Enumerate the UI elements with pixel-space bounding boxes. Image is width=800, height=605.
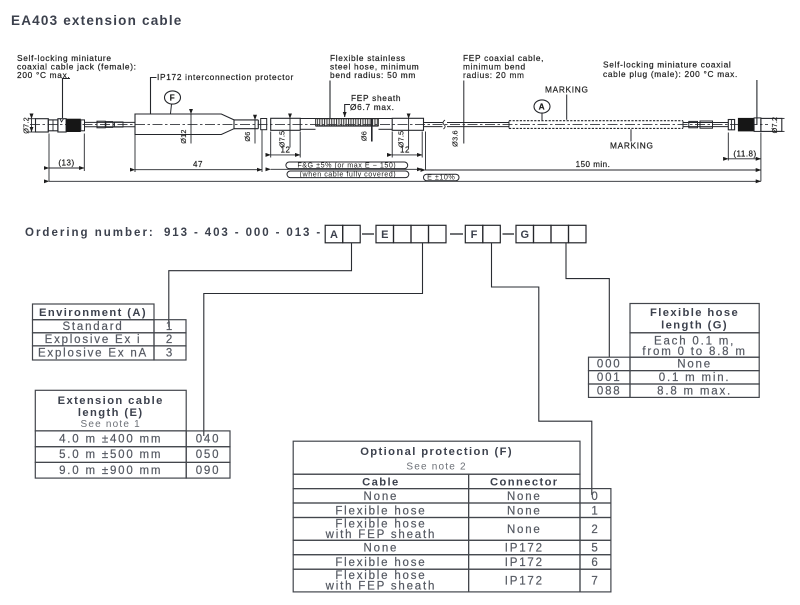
svg-text:Ø12: Ø12 [179, 129, 188, 143]
svg-text:1: 1 [591, 506, 599, 518]
svg-text:040: 040 [196, 434, 221, 446]
svg-text:A: A [539, 102, 546, 112]
svg-text:F: F [471, 229, 478, 241]
svg-text:Flexible hose: Flexible hose [335, 506, 426, 518]
svg-text:913 - 403 - 000 - 013 -: 913 - 403 - 000 - 013 - [164, 227, 322, 239]
svg-text:G: G [521, 229, 530, 241]
svg-text:12: 12 [400, 146, 410, 155]
svg-text:None: None [677, 359, 712, 371]
svg-text:8.8 m max.: 8.8 m max. [657, 386, 732, 398]
svg-text:3: 3 [166, 348, 174, 360]
svg-text:000: 000 [597, 359, 622, 371]
svg-text:A: A [330, 229, 338, 241]
svg-text:See note 1: See note 1 [81, 419, 141, 430]
svg-text:with FEP sheath: with FEP sheath [325, 581, 437, 593]
svg-text:Explosive Ex i: Explosive Ex i [45, 334, 142, 346]
svg-text:F&G ±5% (or max E − 150): F&G ±5% (or max E − 150) [297, 160, 396, 169]
svg-text:6: 6 [591, 557, 599, 569]
svg-text:Ordering number:: Ordering number: [25, 227, 155, 239]
svg-text:150 min.: 150 min. [576, 160, 611, 169]
svg-text:(11.8): (11.8) [733, 149, 756, 158]
svg-text:Explosive Ex nA: Explosive Ex nA [38, 348, 148, 360]
svg-text:088: 088 [597, 386, 622, 398]
svg-text:Ø7.2: Ø7.2 [21, 117, 30, 134]
svg-text:090: 090 [196, 465, 221, 477]
svg-text:bend radius: 50 mm: bend radius: 50 mm [330, 70, 416, 80]
svg-text:None: None [364, 491, 399, 503]
svg-text:Ø7.2: Ø7.2 [770, 117, 779, 134]
svg-text:0.1 m min.: 0.1 m min. [659, 372, 731, 384]
svg-text:MARKING: MARKING [610, 141, 654, 151]
svg-text:EA403 extension cable: EA403 extension cable [11, 13, 183, 28]
svg-text:5: 5 [591, 543, 599, 555]
svg-text:(13): (13) [58, 159, 74, 168]
svg-text:1: 1 [166, 321, 174, 333]
svg-text:Optional protection (F): Optional protection (F) [360, 446, 513, 458]
svg-text:2: 2 [166, 334, 174, 346]
svg-text:(when cable fully covered): (when cable fully covered) [300, 169, 397, 178]
svg-text:Self-locking miniature coaxial: Self-locking miniature coaxial [603, 60, 731, 70]
svg-text:4.0 m ±400 mm: 4.0 m ±400 mm [59, 434, 162, 446]
svg-text:12: 12 [281, 146, 291, 155]
svg-text:Flexible hose: Flexible hose [650, 307, 739, 319]
svg-text:IP172: IP172 [505, 543, 544, 555]
svg-text:radius: 20 mm: radius: 20 mm [463, 70, 525, 80]
svg-text:9.0 m ±900 mm: 9.0 m ±900 mm [59, 465, 162, 477]
svg-text:with FEP sheath: with FEP sheath [325, 529, 437, 541]
svg-text:F: F [170, 93, 176, 103]
svg-text:IP172 interconnection protecto: IP172 interconnection protector [157, 72, 294, 82]
svg-text:E: E [381, 229, 388, 241]
svg-text:Extension cable: Extension cable [58, 395, 164, 407]
svg-text:length (E): length (E) [78, 407, 144, 419]
svg-text:5.0 m ±500 mm: 5.0 m ±500 mm [59, 449, 162, 461]
svg-text:length (G): length (G) [661, 320, 728, 332]
svg-text:None: None [507, 506, 542, 518]
svg-text:Flexible hose: Flexible hose [335, 557, 426, 569]
svg-text:IP172: IP172 [505, 557, 544, 569]
svg-text:None: None [507, 491, 542, 503]
svg-text:E ±10%: E ±10% [427, 172, 455, 181]
svg-text:Ø6.7 max.: Ø6.7 max. [350, 102, 395, 112]
svg-text:Ø3.6: Ø3.6 [450, 130, 459, 147]
svg-text:See note 2: See note 2 [406, 462, 466, 473]
svg-text:Environment (A): Environment (A) [39, 307, 147, 319]
svg-text:Standard: Standard [62, 321, 123, 333]
svg-text:2: 2 [591, 524, 599, 536]
svg-text:cable plug (male): 200 °C max.: cable plug (male): 200 °C max. [603, 69, 738, 79]
svg-text:0: 0 [591, 491, 599, 503]
svg-text:None: None [507, 524, 542, 536]
svg-text:Cable: Cable [362, 477, 399, 489]
svg-text:001: 001 [597, 372, 622, 384]
svg-text:None: None [364, 543, 399, 555]
svg-text:Ø6: Ø6 [243, 131, 252, 141]
svg-text:IP172: IP172 [505, 576, 544, 588]
svg-text:7: 7 [591, 576, 599, 588]
svg-text:47: 47 [193, 160, 203, 169]
svg-text:MARKING: MARKING [545, 85, 589, 95]
svg-text:050: 050 [196, 449, 221, 461]
svg-text:Ø6: Ø6 [360, 131, 369, 141]
svg-text:Connector: Connector [490, 477, 559, 489]
svg-text:from 0 to 8.8 m: from 0 to 8.8 m [642, 346, 746, 358]
